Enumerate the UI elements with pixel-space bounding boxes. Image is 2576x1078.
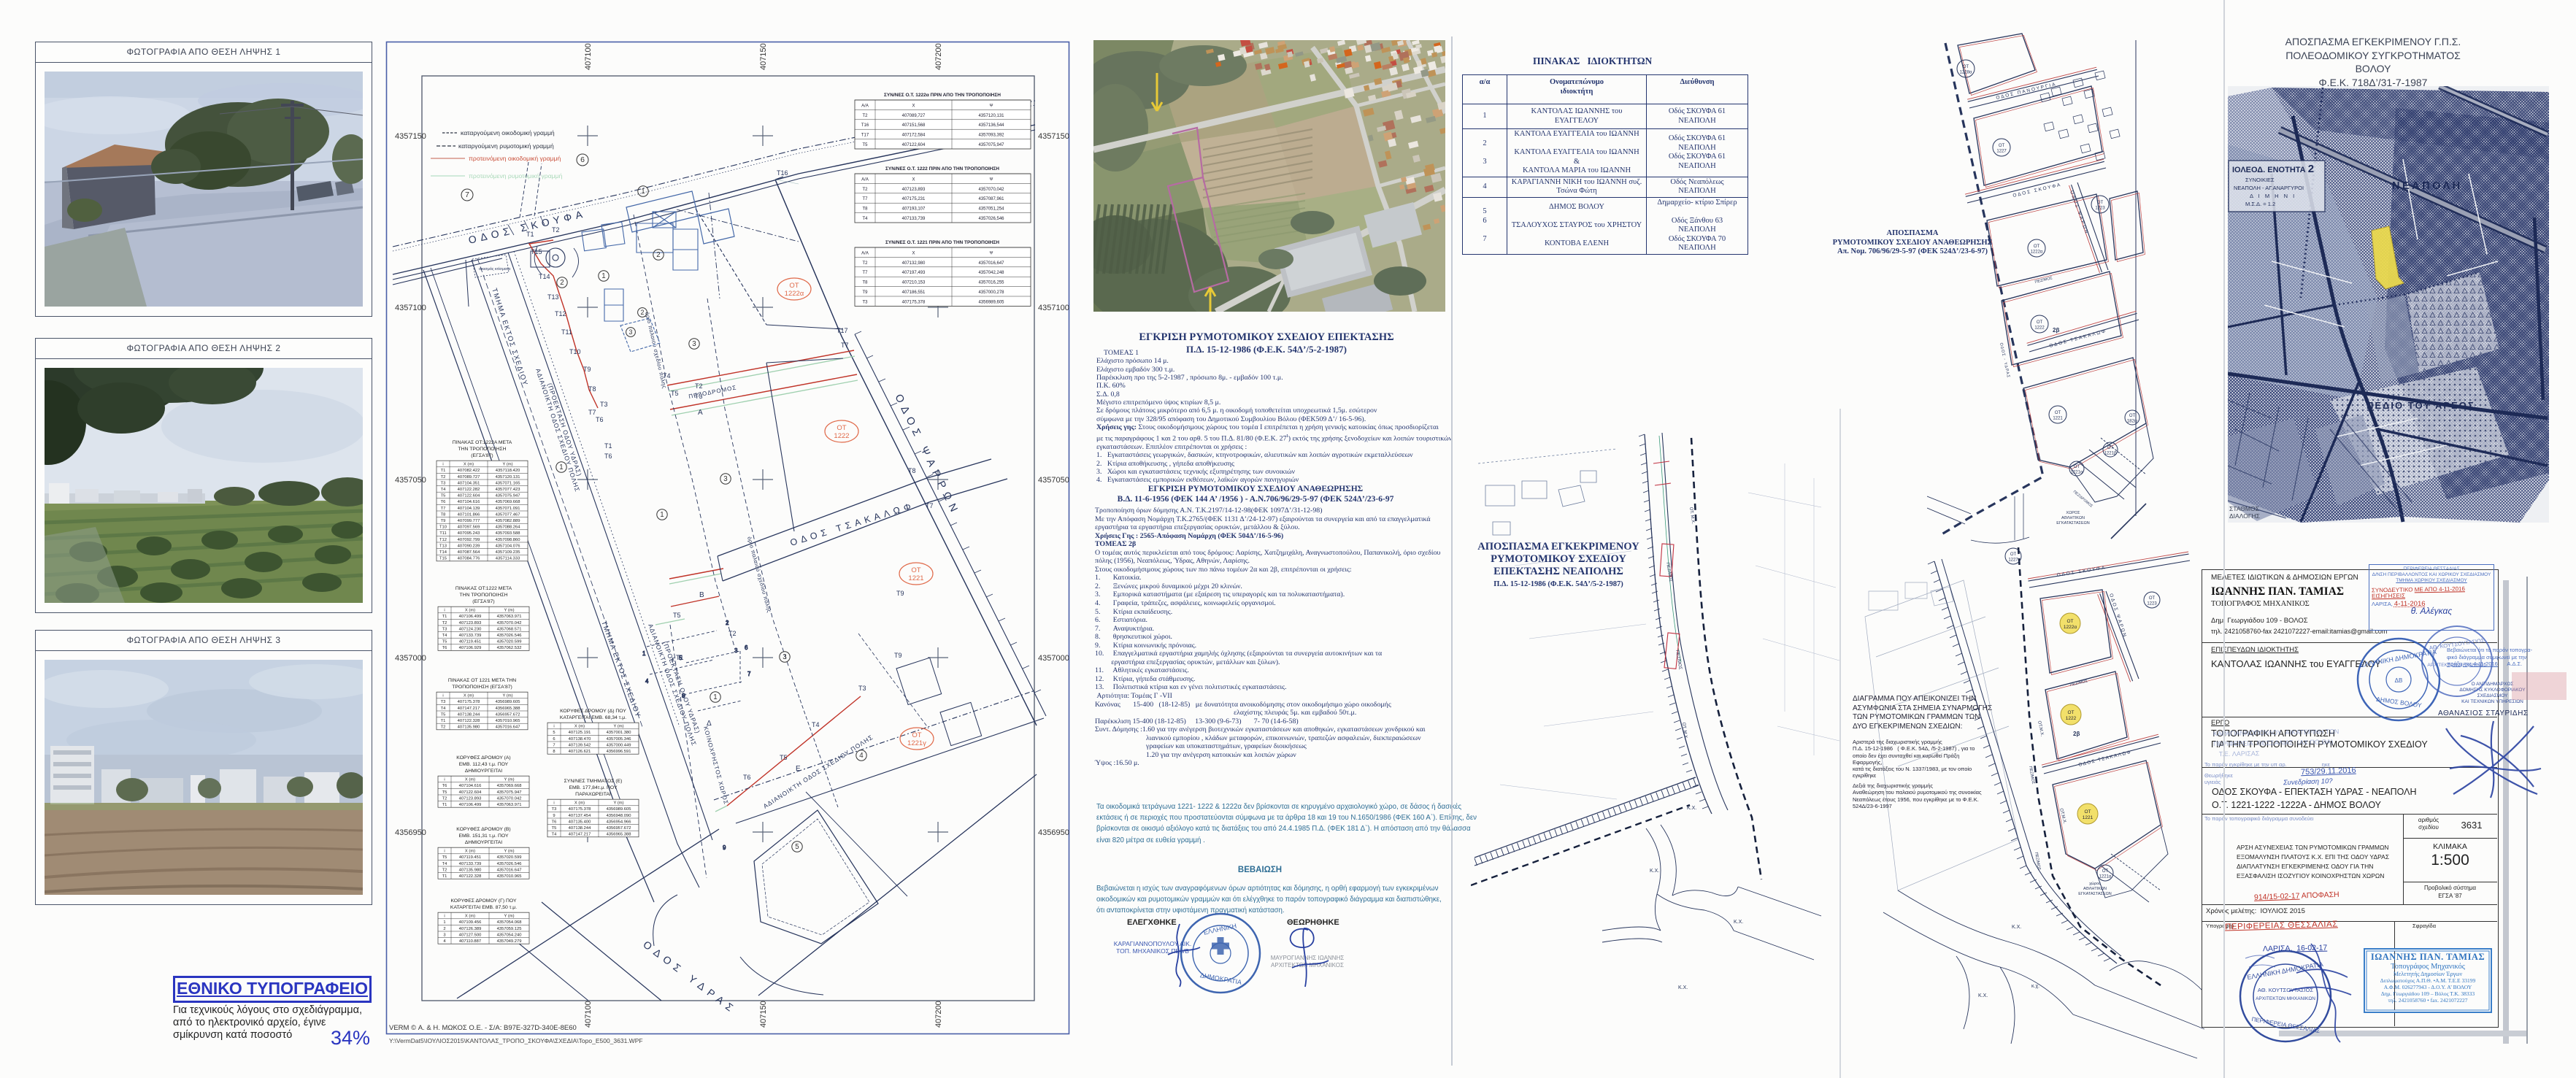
svg-text:4357000: 4357000 [395,654,426,663]
svg-text:407150: 407150 [759,1001,768,1028]
svg-text:προτεινόμενη ρυμοτομική γραμ: προτεινόμενη ρυμοτομική γραμμή [469,172,563,180]
svg-text:ΕΜΒ. 177,84τ.μ. ΠΟΥ: ΕΜΒ. 177,84τ.μ. ΠΟΥ [569,785,618,790]
svg-text:καταργούμενη οικοδομική γραμμή: καταργούμενη οικοδομική γραμμή [461,129,555,136]
svg-text:ΚΟΡΥΦΕΣ ΔΡΟΜΟΥ (Β): ΚΟΡΥΦΕΣ ΔΡΟΜΟΥ (Β) [456,827,510,832]
svg-text:1: 1 [641,188,645,196]
svg-text:Y (m): Y (m) [504,609,514,613]
svg-text:ΟΔΟΣ ΨΑΡΩΝ: ΟΔΟΣ ΨΑΡΩΝ [2108,593,2127,639]
svg-text:Β: Β [699,591,704,599]
svg-text:ΑΘΛΗΤΙΚΩΝ: ΑΘΛΗΤΙΚΩΝ [2083,887,2107,891]
svg-text:ΠΕΖ/ΜΟΣ: ΠΕΖ/ΜΟΣ [2034,852,2041,871]
svg-text:Χ: Χ [912,104,915,108]
svg-text:ΝΕΑΠΟΛΗ: ΝΕΑΠΟΛΗ [2392,180,2463,192]
svg-text:4357005.346: 4357005.346 [607,737,631,742]
svg-text:προτεινόμενη οικοδομική γραμμ: προτεινόμενη οικοδομική γραμμή [469,155,561,162]
svg-text:1221α: 1221α [2099,875,2112,879]
svg-text:T8: T8 [441,512,446,517]
svg-text:407200: 407200 [934,43,943,70]
svg-text:7: 7 [553,743,555,747]
svg-text:T8: T8 [588,385,596,393]
svg-text:5: 5 [679,655,683,661]
svg-text:1221γ: 1221γ [907,739,926,747]
svg-text:ΚΟΙΝΟΧΡΗΣΤΟΣ ΧΩΡΟΣ: ΚΟΙΝΟΧΡΗΣΤΟΣ ΧΩΡΟΣ [702,725,729,805]
svg-text:Τ5: Τ5 [862,143,868,147]
svg-text:407110.887: 407110.887 [459,939,481,944]
svg-text:4357016.647: 4357016.647 [496,725,520,730]
svg-text:1223: 1223 [2147,602,2157,607]
svg-text:ΚΟΡΥΦΕΣ ΔΡΟΜΟΥ (Α): ΚΟΡΥΦΕΣ ΔΡΟΜΟΥ (Α) [456,755,510,761]
svg-text:Τ2: Τ2 [862,188,868,192]
svg-text:T8: T8 [908,467,916,474]
svg-text:T7: T7 [588,409,596,416]
svg-text:T3: T3 [552,807,557,812]
svg-text:7: 7 [747,671,751,677]
svg-text:Τ17: Τ17 [861,134,869,138]
svg-text:Κ.Χ.: Κ.Χ. [1650,869,1659,874]
svg-text:407133.739: 407133.739 [459,862,482,866]
svg-text:T9: T9 [896,590,904,597]
svg-text:1: 1 [713,693,717,701]
svg-text:407123.893: 407123.893 [459,621,482,625]
svg-text:T5: T5 [442,790,447,795]
svg-text:X (m): X (m) [574,725,585,729]
svg-text:ΤΗΝ ΤΡΟΠΟΠΟΙΗΣΗ: ΤΗΝ ΤΡΟΠΟΠΟΙΗΣΗ [458,447,506,452]
svg-text:1222: 1222 [834,432,849,440]
svg-text:T2: T2 [552,226,560,234]
svg-text:182ιγ: 182ιγ [2127,420,2137,424]
svg-text:i: i [553,801,554,806]
svg-text:ΟΤ: ΟΤ [2066,619,2073,624]
svg-text:Y (m): Y (m) [504,778,514,782]
svg-text:1222α: 1222α [785,290,804,298]
svg-text:ΔΗΜΙΟΥΡΓΕΙΤΑΙ: ΔΗΜΙΟΥΡΓΕΙΤΑΙ [465,769,502,774]
svg-text:ΤΗΝ ΤΡΟΠΟΠΟΙΗΣΗ: ΤΗΝ ΤΡΟΠΟΠΟΙΗΣΗ [459,593,507,598]
svg-text:407122.328: 407122.328 [458,719,480,723]
svg-text:ΟΤ: ΟΤ [837,424,846,432]
svg-text:4357000,278: 4357000,278 [978,290,1004,295]
svg-text:4356989,605: 4356989,605 [978,300,1004,304]
svg-text:4357077.423: 4357077.423 [496,488,520,492]
svg-text:407090.239: 407090.239 [458,544,480,548]
svg-text:1222: 1222 [2034,326,2045,331]
svg-text:1221α: 1221α [2071,471,2083,475]
svg-text:5: 5 [553,731,555,735]
svg-text:4357054.068: 4357054.068 [497,920,522,925]
svg-text:Y (m): Y (m) [613,801,623,806]
svg-text:T6: T6 [442,784,447,788]
svg-text:2: 2 [656,251,660,259]
svg-text:3: 3 [734,647,738,654]
svg-text:4356965.388: 4356965.388 [607,833,631,837]
svg-text:407092.799: 407092.799 [458,538,480,542]
svg-text:X (m): X (m) [465,609,475,613]
svg-text:T3: T3 [858,685,866,692]
svg-text:T2: T2 [695,382,703,390]
svg-text:ΟΤ: ΟΤ [2084,809,2091,815]
svg-text:T6: T6 [743,774,751,781]
svg-text:4357016,647: 4357016,647 [978,261,1004,266]
svg-text:Κ.Χ.: Κ.Χ. [2012,925,2021,930]
svg-text:Χ: Χ [912,251,915,255]
svg-text:T14: T14 [439,550,447,555]
svg-text:Τ8: Τ8 [862,281,868,285]
svg-text:2: 2 [726,620,729,626]
svg-text:4357070.042: 4357070.042 [497,796,522,801]
svg-text:5: 5 [795,843,799,851]
svg-text:ΠΕΖ/ΜΟΣ: ΠΕΖ/ΜΟΣ [2069,679,2088,688]
svg-text:407133.739: 407133.739 [459,634,482,638]
svg-text:Y (m): Y (m) [502,463,512,467]
svg-text:T1: T1 [442,874,447,879]
svg-text:407106.929: 407106.929 [459,646,482,650]
svg-text:T5: T5 [442,640,447,644]
svg-text:ΠΙΝΑΚΑΣ ΟΤ:1222Α ΜΕΤΑ: ΠΙΝΑΚΑΣ ΟΤ:1222Α ΜΕΤΑ [453,440,512,445]
svg-text:4357050: 4357050 [395,476,426,485]
svg-text:4357071.091: 4357071.091 [496,507,520,511]
svg-text:407095.243: 407095.243 [458,531,480,536]
svg-text:1221: 1221 [2083,815,2094,820]
svg-text:4: 4 [645,678,649,685]
svg-text:1223: 1223 [2095,207,2105,211]
svg-text:407175,378: 407175,378 [902,300,926,304]
svg-text:6: 6 [553,737,555,742]
svg-text:407137.454: 407137.454 [569,814,591,818]
svg-text:T12: T12 [439,538,447,542]
svg-text:T1: T1 [442,615,447,619]
svg-text:2: 2 [641,309,645,316]
svg-text:X (m): X (m) [574,801,585,806]
svg-text:Α/Α: Α/Α [861,251,869,255]
svg-text:407150: 407150 [759,43,768,70]
svg-text:T1: T1 [526,231,534,238]
svg-text:1228α: 1228α [1960,71,1972,75]
svg-text:ΠΕΔΙΟ ΤΟΥ ΑΡΕΟΣ: ΠΕΔΙΟ ΤΟΥ ΑΡΕΟΣ [2367,400,2475,411]
svg-text:407104.616: 407104.616 [459,784,482,788]
svg-text:T1: T1 [442,803,447,807]
svg-text:4357051,254: 4357051,254 [978,207,1004,212]
svg-text:ΚΑΤΑΡΓΕΙΤΑΙ ΕΜΒ. 68,34 τ.μ.: ΚΑΤΑΡΓΕΙΤΑΙ ΕΜΒ. 68,34 τ.μ. [560,715,626,720]
svg-text:T5: T5 [552,826,557,831]
svg-text:4357042,248: 4357042,248 [978,271,1004,275]
svg-text:(ΕΓΣΑ'87): (ΕΓΣΑ'87) [472,599,494,604]
svg-text:ΔΙΑΛΟΓΗΣ: ΔΙΑΛΟΓΗΣ [2229,512,2260,520]
svg-text:Α/Α: Α/Α [861,177,869,182]
svg-text:T9: T9 [894,652,902,659]
svg-text:9: 9 [553,814,555,818]
svg-text:4: 4 [859,752,864,760]
svg-text:4357054.240: 4357054.240 [497,933,522,937]
svg-text:ΚΟΡΥΦΕΣ ΔΡΟΜΟΥ (Γ) ΠΟΥ: ΚΟΡΥΦΕΣ ΔΡΟΜΟΥ (Γ) ΠΟΥ [450,898,516,904]
svg-text:4357075.947: 4357075.947 [497,790,522,795]
svg-text:T15: T15 [531,248,542,255]
svg-text:T5: T5 [671,390,679,397]
svg-text:T4: T4 [552,833,558,837]
svg-text:T3: T3 [441,700,446,704]
svg-text:4357075,947: 4357075,947 [978,143,1004,147]
svg-text:407138.244: 407138.244 [569,826,591,831]
svg-text:T2: T2 [441,725,446,730]
svg-text:T5: T5 [780,754,788,761]
svg-text:407124.230: 407124.230 [459,627,482,631]
svg-text:T9: T9 [441,519,446,523]
svg-text:407126.621: 407126.621 [569,750,591,754]
svg-text:3: 3 [692,340,696,348]
svg-text:407089.727: 407089.727 [458,475,480,480]
svg-text:X (m): X (m) [464,463,474,467]
svg-text:T4: T4 [812,721,820,728]
svg-text:4357016.647: 4357016.647 [497,868,522,872]
svg-text:T2: T2 [442,621,447,625]
svg-text:407193,107: 407193,107 [902,207,926,212]
svg-text:407125.191: 407125.191 [569,731,591,735]
svg-text:4357093,392: 4357093,392 [978,134,1004,138]
svg-text:ΟΔΟΣ ΤΣΑΚΑΛΩΦ: ΟΔΟΣ ΤΣΑΚΑΛΩΦ [789,500,916,547]
svg-text:T5: T5 [441,494,446,498]
svg-text:4356989.605: 4356989.605 [607,807,631,812]
svg-text:ΟΔΟΣ ΥΔΡΑΣ: ΟΔΟΣ ΥΔΡΑΣ [641,939,739,1017]
svg-text:407151,568: 407151,568 [902,123,926,128]
svg-text:407100: 407100 [584,1001,593,1028]
svg-text:4357088.264: 4357088.264 [496,525,521,530]
svg-text:T17: T17 [837,327,848,334]
svg-text:T6: T6 [442,646,447,650]
svg-text:ΣΥΝ/ΝΕΣ Ο.Τ. 1222 ΠΡΙΝ ΑΠΟ Τ: ΣΥΝ/ΝΕΣ Ο.Τ. 1222 ΠΡΙΝ ΑΠΟ ΤΗΝ ΤΡΟΠΟΠΟΙΗ… [885,166,999,172]
svg-text:Τ2: Τ2 [862,261,868,266]
svg-text:1222α: 1222α [2031,250,2043,255]
svg-text:4357026,546: 4357026,546 [978,217,1004,221]
svg-text:2β: 2β [2053,327,2059,334]
svg-text:4357020.599: 4357020.599 [497,640,522,644]
svg-text:T2: T2 [441,475,446,480]
svg-text:ΟΤ: ΟΤ [1999,144,2005,148]
svg-text:407122,604: 407122,604 [902,143,926,147]
svg-text:4357120.131: 4357120.131 [496,475,520,480]
svg-text:407122.328: 407122.328 [459,874,482,879]
svg-text:T2: T2 [442,796,447,801]
svg-text:T7: T7 [841,342,849,349]
svg-text:Μ.Σ.Δ. = 1.2: Μ.Σ.Δ. = 1.2 [2245,201,2275,207]
svg-text:4357069.668: 4357069.668 [497,784,522,788]
svg-text:Γ: Γ [672,657,676,665]
svg-text:ΠΙΝΑΚΑΣ ΟΤ 1221 ΜΕΤΑ ΤΗΝ: ΠΙΝΑΚΑΣ ΟΤ 1221 ΜΕΤΑ ΤΗΝ [448,678,516,683]
svg-text:ΟΤ: ΟΤ [2034,245,2040,249]
svg-text:4356965.388: 4356965.388 [496,707,520,711]
svg-text:407104.139: 407104.139 [458,507,480,511]
svg-text:Τ8: Τ8 [862,207,868,212]
svg-text:T4: T4 [442,634,448,638]
svg-text:Τ16: Τ16 [861,123,869,128]
svg-text:T3: T3 [600,401,608,408]
svg-text:4356954.966: 4356954.966 [607,820,631,824]
svg-text:Y (m): Y (m) [504,850,514,854]
svg-text:i: i [444,915,445,919]
svg-text:T3: T3 [441,481,446,485]
svg-text:1: 1 [660,511,664,519]
svg-text:407135.980: 407135.980 [458,725,480,730]
svg-text:T13: T13 [547,293,559,301]
svg-text:407084.776: 407084.776 [458,557,480,561]
svg-text:ΤΡΟΠΟΠΟΙΗΣΗ (ΕΓΣΑ'87): ΤΡΟΠΟΠΟΙΗΣΗ (ΕΓΣΑ'87) [452,685,512,690]
svg-text:i: i [444,850,445,854]
svg-text:ΚΟΡΥΦΕΣ ΔΡΟΜΟΥ (Δ) ΠΟΥ: ΚΟΡΥΦΕΣ ΔΡΟΜΟΥ (Δ) ΠΟΥ [560,709,626,714]
svg-text:6: 6 [745,644,748,651]
svg-text:4356948.090: 4356948.090 [607,814,631,818]
svg-text:Δ: Δ [707,720,712,728]
svg-text:X (m): X (m) [465,778,475,782]
svg-text:ΠΙΝΑΚΑΣ ΟΤ:1222 ΜΕΤΑ: ΠΙΝΑΚΑΣ ΟΤ:1222 ΜΕΤΑ [455,586,512,591]
svg-text:407138.244: 407138.244 [458,712,480,717]
svg-text:407139.542: 407139.542 [569,743,591,747]
svg-text:T14: T14 [539,273,550,280]
svg-text:407100: 407100 [584,43,593,70]
svg-text:407126.389: 407126.389 [459,927,482,931]
svg-text:4357104.076: 4357104.076 [496,544,520,548]
svg-text:407099.777: 407099.777 [458,519,480,523]
svg-text:4356996.591: 4356996.591 [607,750,631,754]
svg-text:407087.564: 407087.564 [458,550,480,555]
svg-text:407101.866: 407101.866 [458,512,480,517]
svg-text:Κ.Χ.: Κ.Χ. [1678,985,1688,990]
svg-text:Α: Α [698,409,703,417]
svg-text:4357136,544: 4357136,544 [978,123,1004,128]
svg-text:2: 2 [443,927,445,931]
svg-text:407197,493: 407197,493 [902,271,926,275]
svg-text:4356957.672: 4356957.672 [607,826,631,831]
svg-text:ΣΥΝΟΙΚΙΕΣ: ΣΥΝΟΙΚΙΕΣ [2245,177,2275,183]
svg-text:8: 8 [682,693,685,699]
svg-text:1227: 1227 [1996,150,2007,154]
svg-text:ΟΤ. Μ.Χ.: ΟΤ. Μ.Χ. [1688,507,1695,524]
svg-text:4357000: 4357000 [1038,654,1069,663]
svg-text:ΟΔΟΣ ΣΚΟΥΦΑ: ΟΔΟΣ ΣΚΟΥΦΑ [2012,182,2062,199]
svg-text:407138.470: 407138.470 [569,737,591,742]
svg-text:407122.604: 407122.604 [459,790,482,795]
svg-text:T10: T10 [439,525,447,530]
svg-text:407186,551: 407186,551 [902,290,926,295]
svg-text:T2: T2 [728,630,737,637]
svg-text:T1: T1 [604,442,612,450]
svg-text:Τ4: Τ4 [862,217,868,221]
svg-text:T1: T1 [441,469,446,473]
svg-text:X (m): X (m) [464,694,474,698]
svg-text:ΕΜΒ. 151,31 τ.μ. ΠΟΥ: ΕΜΒ. 151,31 τ.μ. ΠΟΥ [459,833,509,839]
svg-text:Y (m): Y (m) [502,694,512,698]
svg-text:4357059.125: 4357059.125 [497,927,522,931]
svg-text:4356957.672: 4356957.672 [496,712,520,717]
svg-text:4357001.380: 4357001.380 [607,731,631,735]
svg-text:Y (m): Y (m) [613,725,623,729]
svg-text:4356989.605: 4356989.605 [496,700,520,704]
svg-text:407082.422: 407082.422 [458,469,480,473]
svg-text:407089,727: 407089,727 [902,114,926,118]
svg-text:όριο παλαιού σχεδίου πόλης: όριο παλαιού σχεδίου πόλης [746,536,773,613]
svg-text:4357070.042: 4357070.042 [497,621,522,625]
svg-text:4357071.165: 4357071.165 [496,481,520,485]
svg-text:2: 2 [560,279,564,287]
svg-text:4357114.333: 4357114.333 [496,557,520,561]
svg-text:ΟΤ: ΟΤ [2074,465,2080,469]
svg-text:1221: 1221 [2053,417,2063,421]
svg-text:407119.451: 407119.451 [459,640,481,644]
svg-text:T10: T10 [569,348,581,355]
svg-text:X (m): X (m) [465,915,475,919]
svg-text:6: 6 [580,155,585,164]
svg-text:T1: T1 [441,719,446,723]
svg-text:4356950: 4356950 [395,828,426,837]
svg-text:T15: T15 [439,557,447,561]
svg-text:κ.χ.: κ.χ. [2031,984,2039,989]
svg-text:1: 1 [601,272,605,280]
svg-text:4356950: 4356950 [1038,828,1069,837]
svg-text:i: i [444,609,445,613]
svg-text:T2: T2 [442,868,447,872]
svg-text:Ψ: Ψ [989,177,993,182]
svg-text:Ψ: Ψ [989,104,993,108]
svg-text:1: 1 [443,920,445,925]
svg-text:4357020.599: 4357020.599 [497,855,522,860]
svg-text:ΣΥΝ/ΝΕΣ ΤΜΗΜΑΤΟΣ (Ε): ΣΥΝ/ΝΕΣ ΤΜΗΜΑΤΟΣ (Ε) [564,779,623,784]
svg-text:4357063.971: 4357063.971 [497,615,522,619]
svg-text:407132,980: 407132,980 [902,261,926,266]
svg-text:καταργούμενη ρυμοτομική γραμμή: καταργούμενη ρυμοτομική γραμμή [458,142,554,150]
svg-text:i: i [553,725,554,729]
svg-text:407123.893: 407123.893 [459,796,482,801]
svg-text:4357077.467: 4357077.467 [496,512,520,517]
svg-text:4357093.588: 4357093.588 [496,531,520,536]
svg-text:407172,584: 407172,584 [902,134,926,138]
svg-text:ΣΥΝ/ΝΕΣ Ο.Τ. 1222α ΠΡΙΝ ΑΠΟ: ΣΥΝ/ΝΕΣ Ο.Τ. 1222α ΠΡΙΝ ΑΠΟ ΤΗΝ ΤΡΟΠΟΠΟΙ… [884,93,1001,98]
svg-text:4357026.546: 4357026.546 [497,634,522,638]
svg-text:T12: T12 [555,310,566,317]
svg-text:8: 8 [553,750,555,754]
svg-text:Χ: Χ [912,177,915,182]
svg-text:T5: T5 [441,712,446,717]
svg-text:407147.217: 407147.217 [569,833,591,837]
svg-text:1: 1 [559,463,563,471]
svg-text:T6: T6 [552,820,557,824]
svg-text:3: 3 [783,653,786,661]
svg-text:ΟΤ: ΟΤ [912,731,921,739]
svg-text:4357062.532: 4357062.532 [497,646,522,650]
svg-text:X (m): X (m) [465,850,475,854]
svg-text:Ε: Ε [796,765,801,773]
svg-text:407135.400: 407135.400 [569,820,591,824]
svg-text:ΣΤΑΘΜΟΣ: ΣΤΑΘΜΟΣ [2229,505,2259,512]
svg-text:4357000.449: 4357000.449 [607,743,631,747]
svg-text:7: 7 [465,190,469,199]
svg-text:4357026.546: 4357026.546 [497,862,522,866]
svg-text:Κ.Χ.: Κ.Χ. [1687,806,1696,811]
svg-text:T16: T16 [777,169,788,177]
svg-text:4357075.947: 4357075.947 [496,494,520,498]
svg-text:ΟΤ: ΟΤ [2107,446,2114,450]
svg-text:ΠΕΖ/ΔΡΟΜΟΣ: ΠΕΖ/ΔΡΟΜΟΣ [2072,490,2094,509]
svg-text:ΑΔΙΑΝΟΙΚΤΗ ΟΔΟΣ ΣΧΕΔΙΟΥ ΠΟΛΗΣ: ΑΔΙΑΝΟΙΚΤΗ ΟΔΟΣ ΣΧΕΔΙΟΥ ΠΟΛΗΣ [534,368,581,493]
svg-text:T7: T7 [926,502,934,509]
svg-text:ΕΜΒ. 112,43 τ.μ. ΠΟΥ: ΕΜΒ. 112,43 τ.μ. ΠΟΥ [459,762,509,767]
svg-text:4357070,042: 4357070,042 [978,188,1004,192]
svg-text:407200: 407200 [934,1001,943,1028]
svg-text:407123,893: 407123,893 [902,188,926,192]
svg-text:οικισμός κτίσματα: οικισμός κτίσματα [479,266,511,272]
svg-text:ΠΑΡΑΧΩΡΕΙΤΑΙ: ΠΑΡΑΧΩΡΕΙΤΑΙ [575,792,611,797]
svg-text:1222α: 1222α [2064,625,2077,630]
svg-text:Α/Α: Α/Α [861,104,869,108]
svg-text:ΟΤ: ΟΤ [2067,710,2074,715]
svg-text:Τ7: Τ7 [862,197,868,201]
svg-text:407106.499: 407106.499 [459,615,482,619]
svg-text:407175,231: 407175,231 [902,197,926,201]
